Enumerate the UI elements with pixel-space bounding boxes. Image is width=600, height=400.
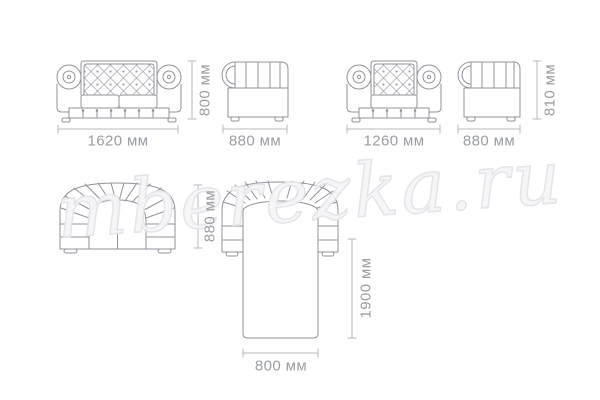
sofa-front-view [57, 61, 181, 122]
furniture-dimensions-diagram: mberezka.ru 1620 мм 800 мм 880 мм 1260 м… [0, 0, 600, 400]
dim-label-sofa-height: 800 мм [197, 64, 214, 116]
line-art-canvas [0, 0, 600, 400]
dim-label-armchair-height: 810 мм [542, 64, 559, 116]
dim-line-armchair-height [533, 61, 541, 119]
dim-label-top-depth: 880 мм [202, 190, 219, 242]
dim-label-sofa-width: 1620 мм [88, 133, 149, 150]
dim-label-bed-width: 800 мм [255, 358, 307, 375]
sofa-side-view [222, 62, 288, 121]
dim-line-sofa-height [188, 61, 196, 119]
dim-label-sofa-depth: 880 мм [229, 133, 281, 150]
dim-label-armchair-width: 1260 мм [364, 133, 425, 150]
sofa-bed-top-view [222, 181, 338, 338]
armchair-front-view [347, 61, 441, 122]
dim-label-bed-length: 1900 мм [358, 258, 375, 319]
dim-line-bed-length [348, 239, 356, 338]
dimension-lines [58, 61, 541, 357]
dim-label-armchair-depth: 880 мм [463, 133, 515, 150]
dim-line-bed-width [243, 349, 318, 357]
sofa-top-view [60, 183, 175, 253]
armchair-side-view [458, 62, 520, 121]
